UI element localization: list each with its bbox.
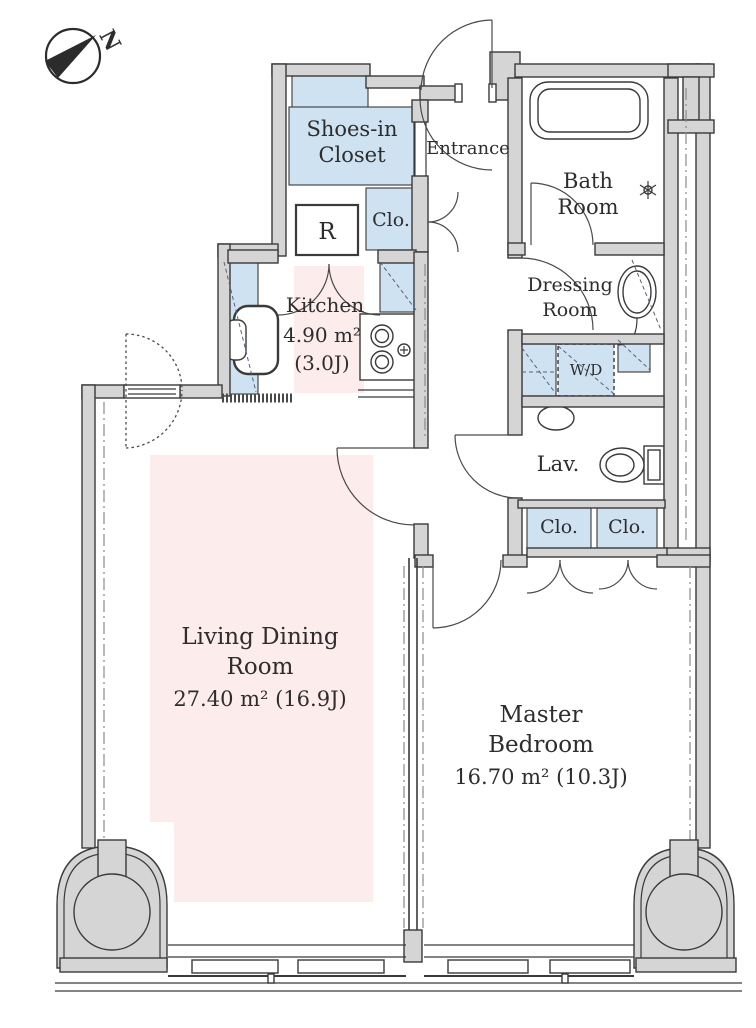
bath-room-label-1: Bath (563, 169, 613, 193)
bedroom-closet-left-label: Clo. (540, 516, 578, 538)
bedroom-closet-right-label: Clo. (608, 516, 646, 538)
living-dining-window (168, 945, 406, 983)
hall-closet-doors (428, 192, 458, 252)
master-bedroom-door (433, 560, 501, 628)
floor-plan-page: Shoes-in Closet Entrance Bath Room Clo. … (0, 0, 756, 1024)
living-dining-label-2: Room (227, 654, 294, 680)
stove-icon (360, 314, 416, 380)
hall-closet-label: Clo. (372, 209, 410, 231)
windows (168, 945, 634, 983)
bathtub-icon (530, 82, 648, 139)
north-arrow-icon: N (45, 25, 126, 83)
wash-basin-icon (618, 266, 656, 345)
entrance-label: Entrance (426, 138, 510, 159)
kitchen-area-m2: 4.90 m² (283, 323, 361, 347)
master-bedroom-label-1: Master (500, 702, 583, 728)
balcony-lines (55, 983, 742, 991)
living-dining-area: 27.40 m² (16.9J) (173, 687, 346, 711)
lav-door (455, 435, 518, 498)
column-left (57, 840, 167, 972)
dressing-room-label-1: Dressing (527, 274, 613, 296)
kitchen-area-jo: (3.0J) (294, 351, 349, 375)
faucet-icon (640, 181, 656, 199)
north-label: N (93, 25, 125, 55)
column-right (634, 840, 736, 972)
columns (57, 840, 736, 972)
wd-side-counter (522, 344, 556, 396)
dressing-room-label-2: Room (542, 299, 597, 321)
bath-room-label-2: Room (557, 195, 618, 219)
shoes-closet-label-1: Shoes-in (306, 117, 397, 141)
lavatory-label: Lav. (537, 452, 580, 476)
washer-dryer-label: W/D (570, 361, 603, 379)
toilet-icon (600, 446, 664, 484)
refrigerator-label: R (318, 219, 336, 245)
kitchen-label: Kitchen (286, 293, 364, 317)
kitchen-sink-icon (226, 306, 278, 374)
lav-sink-icon (538, 406, 574, 430)
dashed-double-door (124, 334, 182, 448)
bedroom-closet-doors (527, 560, 657, 593)
living-dining-label-1: Living Dining (181, 624, 339, 650)
master-bedroom-window (424, 945, 634, 983)
master-bedroom-label-2: Bedroom (488, 732, 594, 758)
master-bedroom-area: 16.70 m² (10.3J) (454, 765, 627, 789)
floor-plan: Shoes-in Closet Entrance Bath Room Clo. … (0, 0, 756, 1024)
shoes-closet-label-2: Closet (318, 143, 386, 167)
